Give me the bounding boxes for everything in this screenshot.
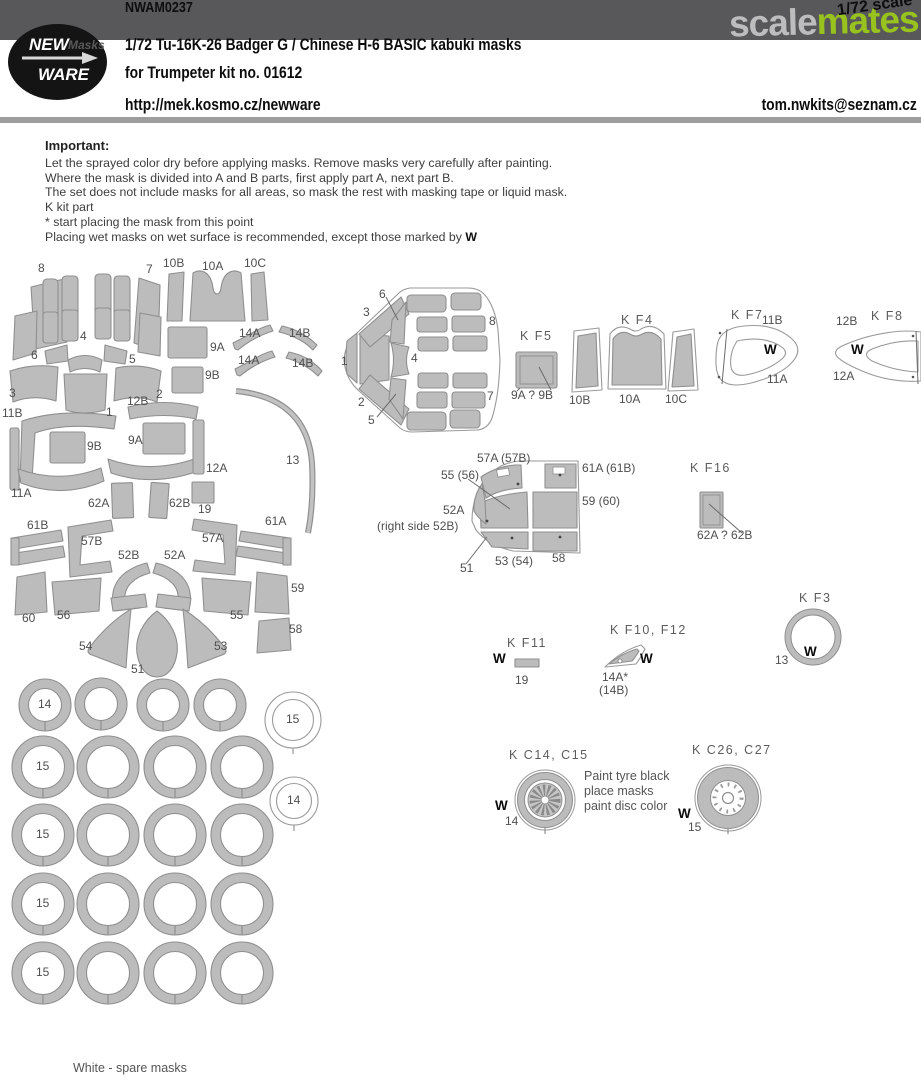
kf16-mask: [700, 492, 742, 533]
part-label-11b: 11B: [2, 407, 22, 419]
part-label-w: W: [493, 652, 506, 666]
part-label-11a: 11A: [11, 487, 31, 499]
part-label-k-f5: K F5: [520, 330, 552, 343]
kf10-f12-mask: [605, 645, 645, 667]
part-label-11a: 11A: [767, 373, 787, 385]
part-label-13: 13: [775, 654, 788, 666]
part-label-52a: 52A: [164, 549, 185, 561]
part-label-9b: 9B: [87, 440, 102, 452]
part-label-57b: 57B: [81, 535, 102, 547]
part-label-paint-tyre-black: Paint tyre black: [584, 770, 669, 783]
kf11-mask: [515, 659, 539, 667]
part-label-9a: 9A: [128, 434, 143, 446]
part-label-paint-disc-color: paint disc color: [584, 800, 667, 813]
part-label-12b: 12B: [836, 315, 857, 327]
part-label-4: 4: [411, 352, 418, 364]
kf4-masks: [572, 326, 698, 392]
part-label-55-56-: 55 (56): [441, 469, 479, 481]
part-label-51: 51: [131, 663, 144, 675]
part-label-19: 19: [515, 674, 528, 686]
part-label-19: 19: [198, 503, 211, 515]
part-label-14b: 14B: [289, 327, 310, 339]
part-label-15: 15: [36, 760, 49, 772]
part-label-52b: 52B: [118, 549, 139, 561]
part-label-k-f16: K F16: [690, 462, 731, 475]
part-label-white-spare-masks: White - spare masks: [73, 1062, 187, 1075]
part-label-k-c26-c27: K C26, C27: [692, 744, 772, 757]
part-label-62a: 62A: [88, 497, 109, 509]
part-label-k-f3: K F3: [799, 592, 831, 605]
part-label-5: 5: [368, 414, 375, 426]
wheel-c26-c27-diagram: [695, 765, 761, 834]
part-label-k-f4: K F4: [621, 314, 653, 327]
part-label-3: 3: [9, 387, 16, 399]
part-label-61a: 61A: [265, 515, 286, 527]
canopy-panel-masks: [10, 274, 161, 413]
kf5-mask: [516, 352, 557, 391]
part-label-53: 53: [214, 640, 227, 652]
part-label-w: W: [495, 799, 508, 813]
part-label-9b: 9B: [205, 369, 220, 381]
part-label-1: 1: [106, 406, 113, 418]
part-label-k-c14-c15: K C14, C15: [509, 749, 589, 762]
mask-instruction-sheet: scalemates 1/72 scale NWAM0237 1/72 Tu-1…: [0, 0, 921, 1080]
part-label-11b: 11B: [762, 314, 782, 326]
part-label-10c: 10C: [244, 257, 266, 269]
part-label-5: 5: [129, 353, 136, 365]
part-label-55: 55: [230, 609, 243, 621]
part-label-10b: 10B: [163, 257, 184, 269]
part-label-14: 14: [38, 698, 51, 710]
part-label-15: 15: [36, 966, 49, 978]
part-label-14a: 14A: [239, 327, 260, 339]
part-label-14: 14: [505, 815, 518, 827]
part-label-6: 6: [31, 349, 38, 361]
part-label-15: 15: [688, 821, 701, 833]
part-label-w: W: [764, 343, 777, 357]
part-label-61a-61b-: 61A (61B): [582, 462, 635, 474]
part-label--14b-: (14B): [599, 684, 628, 696]
part-label-61b: 61B: [27, 519, 48, 531]
part-label--right-side-52b-: (right side 52B): [377, 520, 458, 532]
part-label-52a: 52A: [443, 504, 464, 516]
part-label-k-f8: K F8: [871, 310, 903, 323]
part-label-58: 58: [289, 623, 302, 635]
part-label-15: 15: [286, 713, 299, 725]
part-label-10a: 10A: [619, 393, 640, 405]
part-label-60: 60: [22, 612, 35, 624]
part-label-12a: 12A: [833, 370, 854, 382]
part-label-14b: 14B: [292, 357, 313, 369]
part-label-62b: 62B: [169, 497, 190, 509]
part-label-9a-9b: 9A ? 9B: [511, 389, 553, 401]
part-label-54: 54: [79, 640, 92, 652]
part-label-57a: 57A: [202, 532, 223, 544]
part-label-w: W: [640, 652, 653, 666]
part-label-62a-62b: 62A ? 62B: [697, 529, 752, 541]
part-label-15: 15: [36, 828, 49, 840]
part-label-6: 6: [379, 288, 386, 300]
part-label-10a: 10A: [202, 260, 223, 272]
part-label-7: 7: [146, 263, 153, 275]
part-label-59-60-: 59 (60): [582, 495, 620, 507]
part-label-14: 14: [287, 794, 300, 806]
part-label-56: 56: [57, 609, 70, 621]
part-label-51: 51: [460, 562, 473, 574]
part-label-15: 15: [36, 897, 49, 909]
part-label-12a: 12A: [206, 462, 227, 474]
part-label-k-f11: K F11: [507, 637, 547, 650]
part-label-14a-: 14A*: [602, 671, 628, 683]
part-label-14a: 14A: [238, 354, 259, 366]
part-label-4: 4: [80, 330, 87, 342]
part-label-k-f7: K F7: [731, 309, 763, 322]
part-label-59: 59: [291, 582, 304, 594]
part-label-k-f10-f12: K F10, F12: [610, 624, 687, 637]
part-label-w: W: [678, 807, 691, 821]
part-label-53-54-: 53 (54): [495, 555, 533, 567]
part-label-8: 8: [38, 262, 45, 274]
part-label-58: 58: [552, 552, 565, 564]
part-label-1: 1: [341, 355, 348, 367]
part-label-57a-57b-: 57A (57B): [477, 452, 530, 464]
part-label-2: 2: [358, 396, 365, 408]
part-label-12b: 12B: [127, 395, 148, 407]
mask-diagram: [0, 0, 921, 1080]
part-label-2: 2: [156, 388, 163, 400]
part-label-13: 13: [286, 454, 299, 466]
part-label-10c: 10C: [665, 393, 687, 405]
part-label-8: 8: [489, 315, 496, 327]
part-label-place-masks: place masks: [584, 785, 653, 798]
part-label-10b: 10B: [569, 394, 590, 406]
part-label-3: 3: [363, 306, 370, 318]
part-label-w: W: [804, 645, 817, 659]
wheel-c14-c15-diagram: [515, 770, 575, 834]
wheel-ring-masks: [12, 678, 321, 1004]
part-label-9a: 9A: [210, 341, 225, 353]
tail-fan-masks: [15, 572, 291, 677]
part-label-w: W: [851, 343, 864, 357]
nose-side-diagram: [466, 461, 580, 564]
part-label-7: 7: [487, 390, 494, 402]
